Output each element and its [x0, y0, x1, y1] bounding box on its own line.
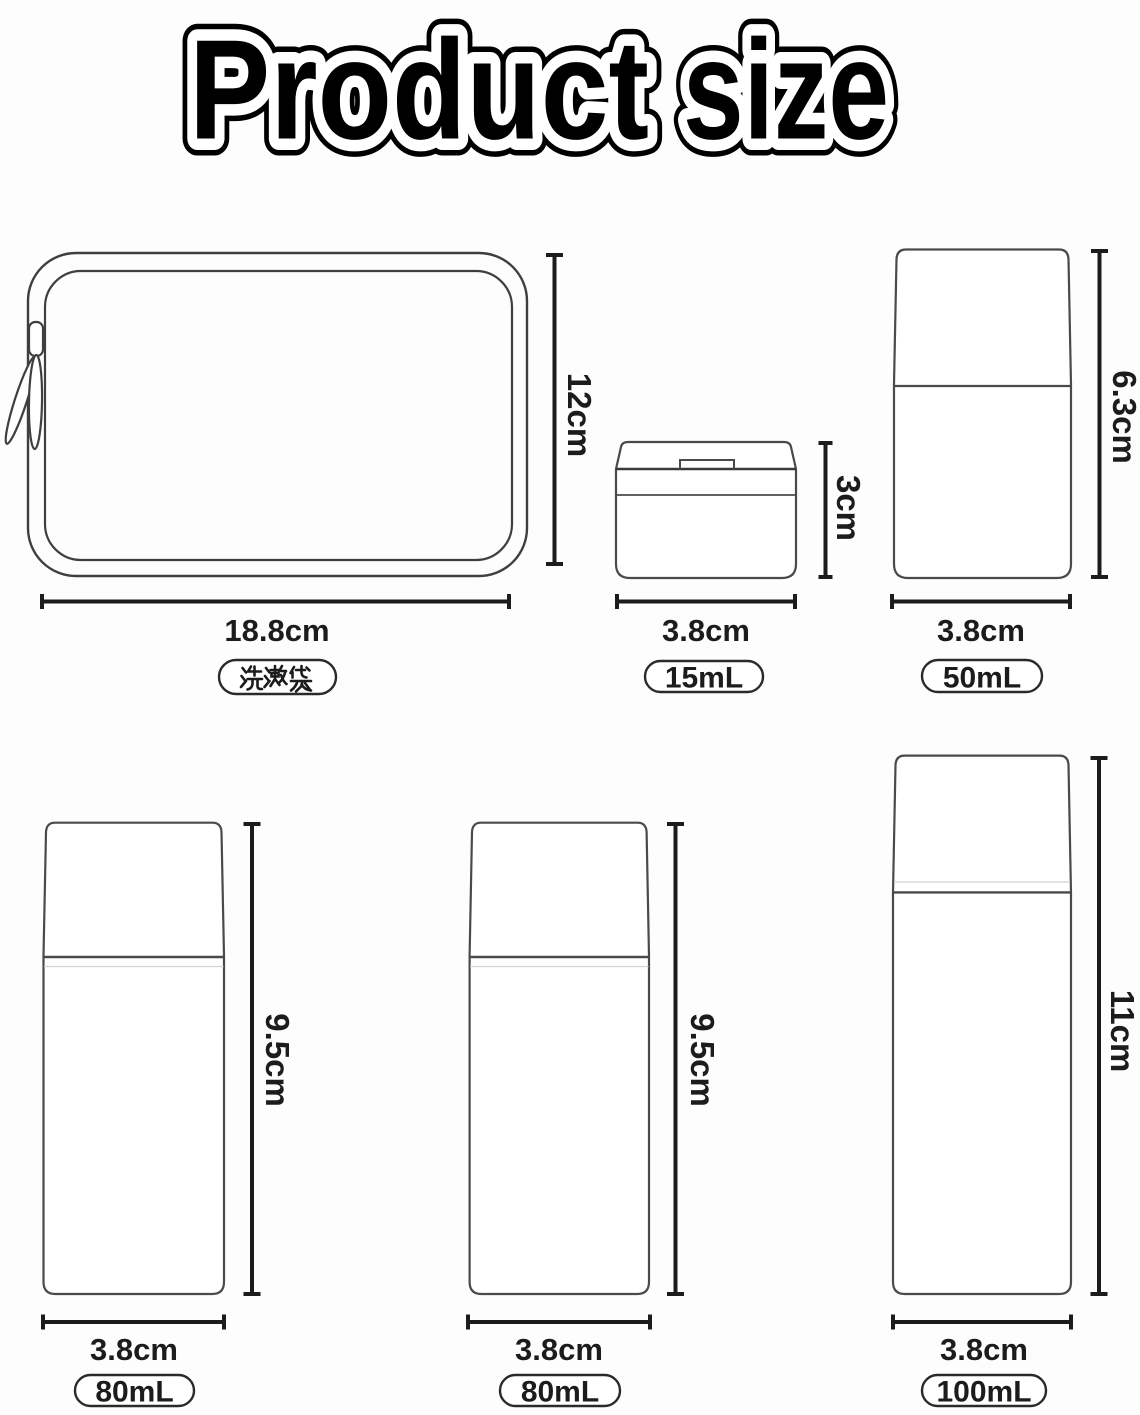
svg-text:3.8cm: 3.8cm: [90, 1332, 178, 1367]
svg-text:9.5cm: 9.5cm: [684, 1013, 721, 1107]
svg-text:50mL: 50mL: [943, 662, 1021, 695]
svg-text:3.8cm: 3.8cm: [662, 613, 750, 648]
svg-text:3.8cm: 3.8cm: [937, 613, 1025, 648]
svg-text:15mL: 15mL: [665, 662, 743, 695]
svg-text:80mL: 80mL: [95, 1376, 173, 1409]
svg-text:6.3cm: 6.3cm: [1106, 370, 1140, 464]
svg-text:Product: Product: [189, 11, 649, 170]
svg-text:100mL: 100mL: [936, 1376, 1031, 1409]
svg-text:9.5cm: 9.5cm: [259, 1013, 296, 1107]
svg-text:3.8cm: 3.8cm: [940, 1332, 1028, 1367]
svg-text:11cm: 11cm: [1104, 990, 1140, 1073]
svg-text:3.8cm: 3.8cm: [515, 1332, 603, 1367]
svg-text:80mL: 80mL: [521, 1376, 599, 1409]
svg-text:12cm: 12cm: [561, 373, 598, 457]
svg-text:3cm: 3cm: [830, 475, 867, 541]
svg-text:size: size: [683, 11, 889, 170]
svg-text:18.8cm: 18.8cm: [224, 613, 329, 648]
